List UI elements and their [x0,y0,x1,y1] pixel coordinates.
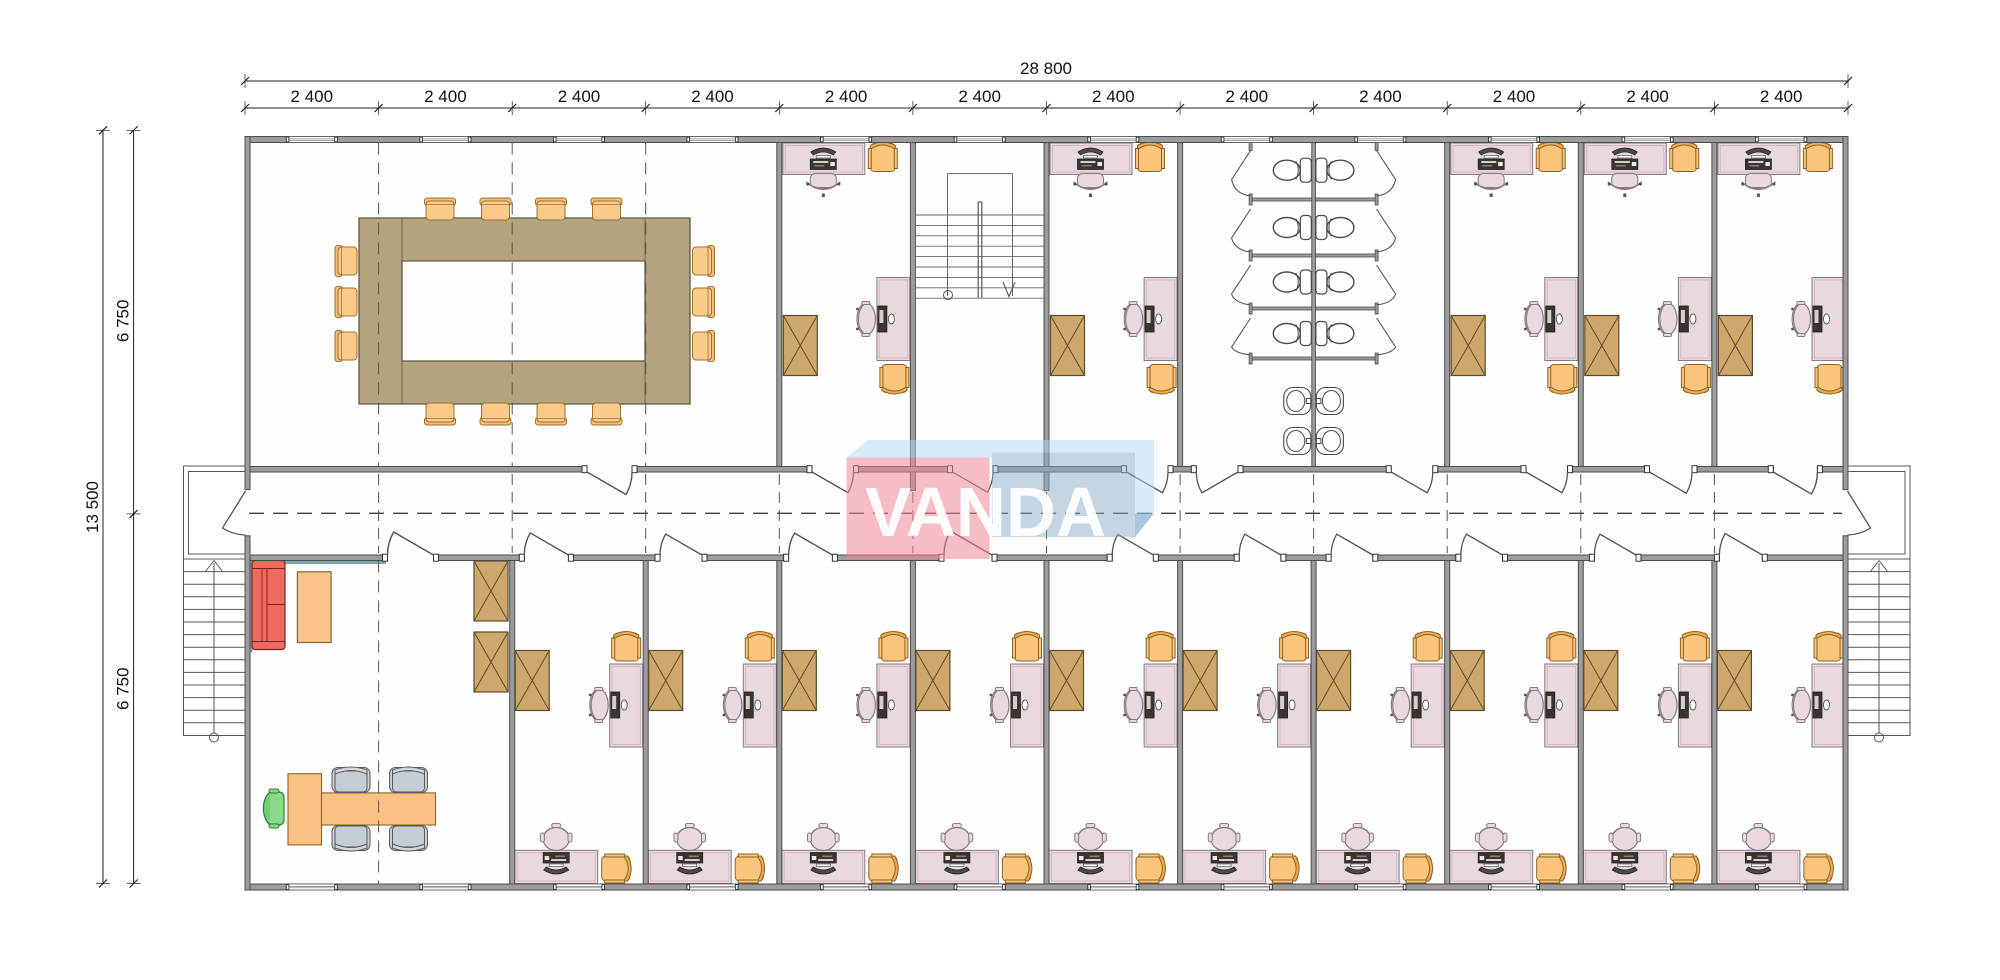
svg-text:28 800: 28 800 [1020,59,1072,78]
svg-text:13 500: 13 500 [83,481,102,533]
svg-text:2 400: 2 400 [1493,87,1536,106]
svg-text:6 750: 6 750 [114,667,133,710]
svg-text:2 400: 2 400 [1226,87,1269,106]
svg-text:2 400: 2 400 [691,87,734,106]
svg-text:2 400: 2 400 [1760,87,1803,106]
svg-text:2 400: 2 400 [558,87,601,106]
svg-text:2 400: 2 400 [424,87,467,106]
svg-text:2 400: 2 400 [1626,87,1669,106]
svg-text:2 400: 2 400 [1092,87,1135,106]
svg-text:2 400: 2 400 [958,87,1001,106]
svg-text:6 750: 6 750 [114,300,133,343]
svg-text:2 400: 2 400 [291,87,334,106]
svg-text:VANDA: VANDA [865,473,1106,551]
svg-text:2 400: 2 400 [825,87,868,106]
svg-text:2 400: 2 400 [1359,87,1402,106]
